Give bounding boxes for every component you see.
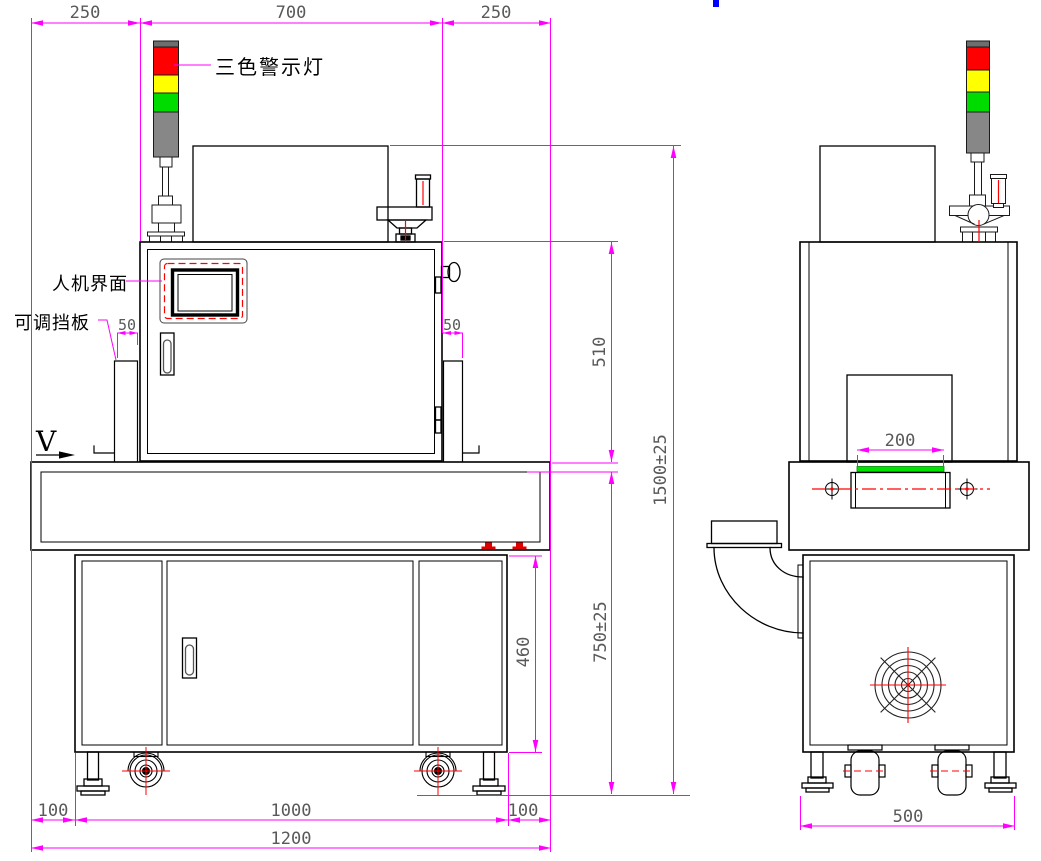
tower-base-segment: [154, 112, 179, 157]
front-foot-right: [473, 752, 505, 795]
right-baffle-bracket: [463, 446, 479, 453]
dim-1500: 1500±25: [651, 434, 671, 506]
side-knob: [442, 263, 461, 282]
table-red-clamps: [482, 543, 527, 550]
front-foot-left: [77, 752, 109, 795]
side-upper-cabinet: [800, 242, 1017, 461]
door-hinges: [436, 277, 442, 433]
blue-artifact: [713, 0, 719, 7]
conveyor-belt: [857, 467, 944, 472]
front-conveyor-table: [31, 462, 550, 550]
dim-bottom-left-100: 100: [38, 801, 69, 821]
red-detail-marks: [122, 180, 999, 795]
tower-yellow-lamp: [154, 75, 179, 93]
lower-door-handle: [183, 638, 197, 678]
upper-door-handle: [161, 333, 175, 375]
front-base-cabinet: [75, 555, 507, 752]
label-tri-color-light: 三色警示灯: [215, 55, 325, 79]
dim-baffle-left-50: 50: [118, 316, 136, 334]
side-conveyor-table: [789, 462, 1029, 550]
dim-460: 460: [514, 637, 534, 668]
dim-top-right-250: 250: [481, 3, 512, 23]
side-top-box: [820, 146, 935, 242]
label-view-v: V: [35, 425, 57, 458]
dim-510: 510: [590, 337, 610, 368]
dim-500: 500: [893, 807, 924, 827]
dim-1200: 1200: [271, 829, 312, 849]
front-view: [31, 41, 550, 795]
front-crank-handle: [377, 175, 432, 242]
dim-750: 750±25: [591, 601, 611, 662]
tower-green-lamp: [154, 93, 179, 112]
crank-centerlines: [406, 181, 424, 242]
hmi-screen: [160, 259, 247, 323]
side-signal-tower-icon: [950, 41, 1010, 242]
tower-cap: [154, 41, 179, 47]
front-upper-cabinet: [140, 242, 460, 461]
dim-top-700: 700: [276, 3, 307, 23]
dim-200: 200: [885, 431, 916, 451]
dim-1000: 1000: [271, 801, 312, 821]
label-hmi: 人机界面: [52, 274, 128, 295]
side-foot-left: [802, 752, 833, 792]
dim-bottom-right-100: 100: [508, 801, 539, 821]
label-adjustable-baffle: 可调挡板: [14, 313, 90, 334]
front-signal-tower-icon: [148, 41, 185, 242]
tower-red-lamp: [154, 47, 179, 75]
left-baffle-plate: [115, 361, 138, 461]
hmi-red-dashed-frame: [165, 264, 243, 319]
front-top-box: [193, 146, 388, 242]
side-view: [707, 41, 1029, 795]
front-casters: [128, 752, 456, 787]
caster-crosshairs: [122, 747, 462, 795]
dim-baffle-right-50: 50: [443, 316, 461, 334]
side-feet: [802, 752, 1016, 792]
dim-top-left-250: 250: [70, 3, 101, 23]
conveyor-roller: [851, 473, 950, 509]
front-baffles: [94, 361, 479, 461]
right-baffle-plate: [444, 361, 463, 461]
left-baffle-bracket: [94, 446, 114, 453]
drawing-canvas: 250 700 250 50 50 510 1500±25 750±25 460…: [0, 0, 1041, 861]
side-foot-right: [985, 752, 1016, 792]
